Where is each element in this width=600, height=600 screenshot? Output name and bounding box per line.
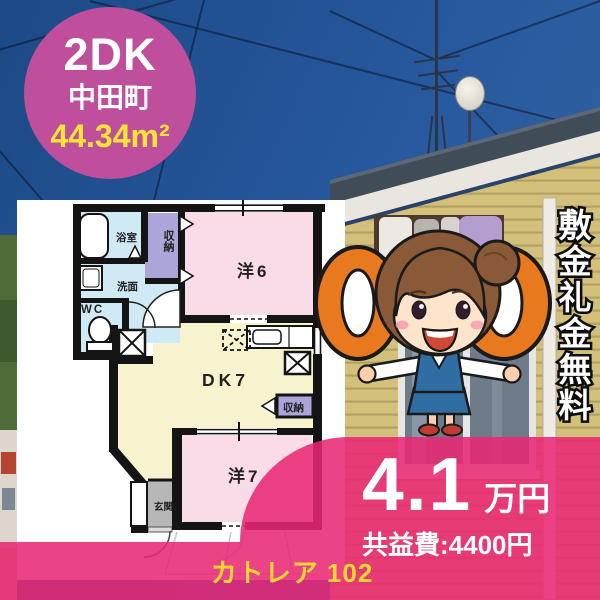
rent-row: 4.1 万円 [362, 447, 600, 522]
mascot-character [310, 180, 560, 440]
rent-value: 4.1 [362, 447, 472, 522]
mascot-ponytail [475, 241, 519, 285]
badge-floor-area: 44.34m² [24, 117, 196, 155]
label-western7: 洋7 [228, 466, 260, 486]
hill-foliage-dark [0, 300, 17, 362]
toilet [89, 317, 111, 343]
label-washroom: 洗面 [117, 280, 138, 293]
label-closet-right: 収納 [283, 401, 304, 414]
mascot-blush [471, 321, 484, 330]
label-closet-top: 収納 [162, 230, 175, 253]
bathtub [80, 214, 108, 258]
neighbor-sign [1, 452, 16, 474]
property-name: カトレア 102 [0, 542, 592, 600]
layout-badge: 2DK 中田町 44.34m² [24, 7, 196, 179]
mascot-shoe [442, 425, 462, 436]
no-deposit-banner: 敷金礼金無料 [548, 208, 596, 438]
badge-layout-type: 2DK [24, 31, 196, 78]
rent-unit: 万円 [484, 472, 550, 520]
label-entrance: 玄関 [154, 501, 173, 513]
label-dk: DK7 [202, 370, 249, 390]
badge-town: 中田町 [24, 80, 196, 115]
kitchen-counter [247, 326, 313, 348]
mascot-eye [412, 301, 426, 319]
washer-box [119, 330, 145, 356]
neighbor-window [2, 488, 15, 510]
fridge-box [285, 352, 310, 374]
label-toilet: WC [81, 304, 104, 316]
mascot-shoe [419, 425, 439, 436]
entrance-step [148, 527, 172, 532]
label-western6: 洋6 [237, 261, 269, 281]
wash-basin-bowl [83, 269, 99, 287]
mascot-eye [456, 301, 470, 319]
listing-image: 浴室 洗面 WC 収納 洋6 DK7 収納 洋7 玄関 [0, 0, 600, 600]
toilet-tank [87, 342, 113, 351]
mascot-blush [396, 321, 409, 330]
label-bath: 浴室 [116, 231, 137, 244]
entrance-door-slab [131, 482, 147, 526]
